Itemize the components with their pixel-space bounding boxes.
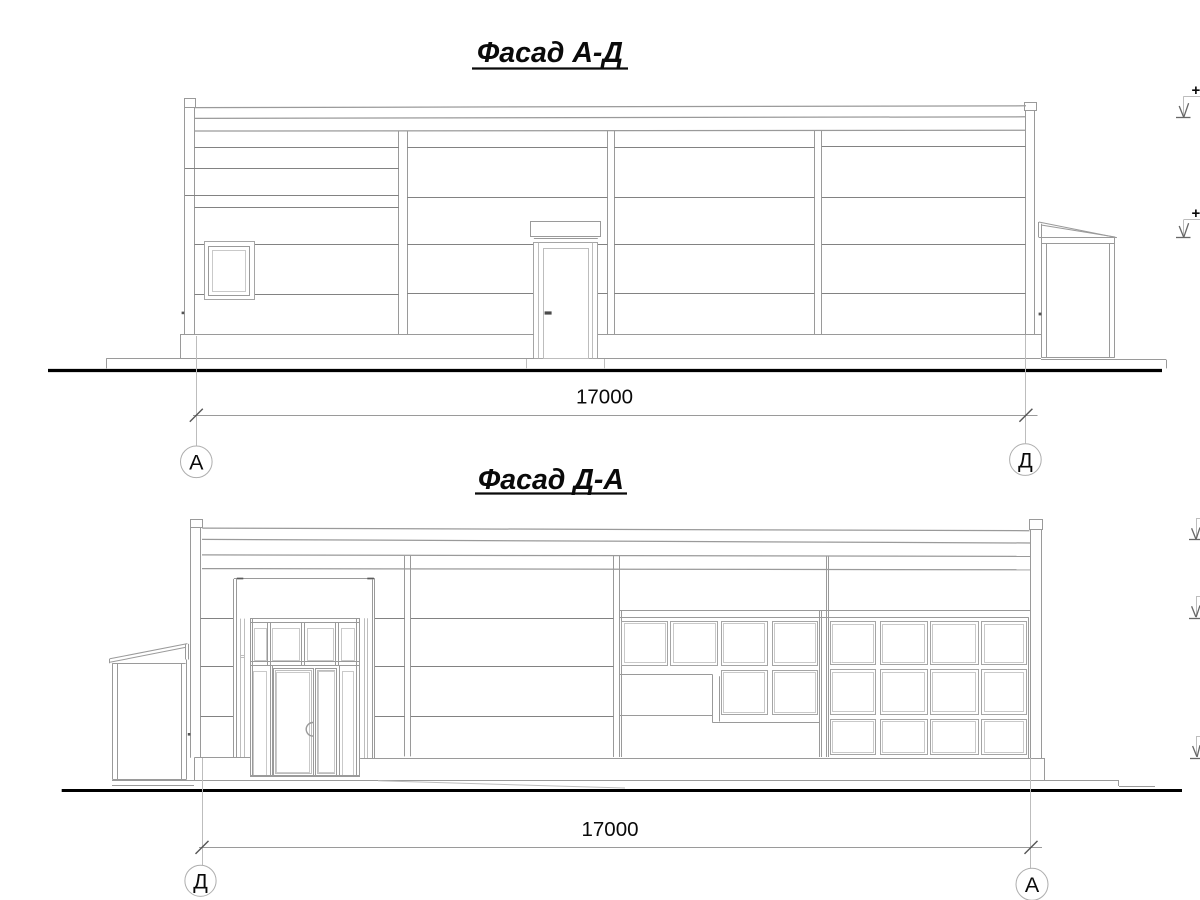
svg-text:+: + [1192,82,1200,99]
svg-text:А: А [1025,873,1040,897]
svg-text:Фасад А-Д: Фасад А-Д [477,37,623,69]
svg-text:Д: Д [1018,448,1033,472]
svg-text:17000: 17000 [581,818,638,841]
svg-text:А: А [189,451,204,475]
svg-text:17000: 17000 [576,385,633,408]
svg-text:Д: Д [193,870,208,894]
svg-text:Фасад Д-А: Фасад Д-А [478,464,624,496]
svg-text:+: + [1192,205,1200,222]
